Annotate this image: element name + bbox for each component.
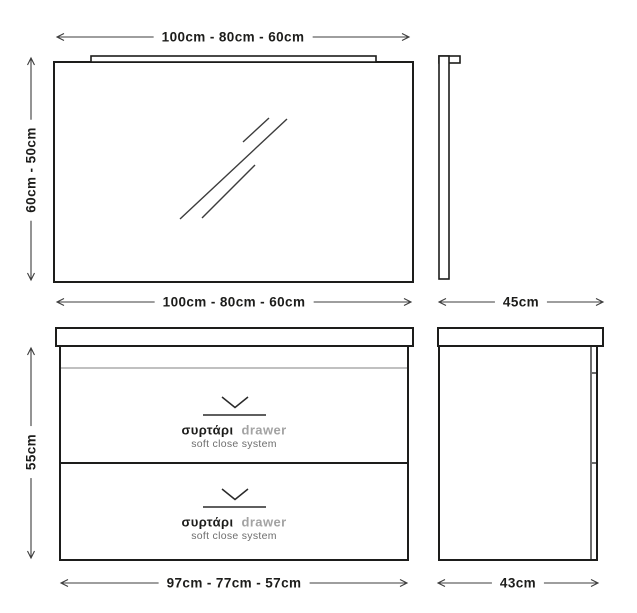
mirror-front-top-ledge — [91, 56, 376, 62]
drawer-1-label-english: drawer — [242, 423, 287, 438]
cabinet-countertop — [56, 328, 413, 346]
cabinet-side-view — [438, 328, 603, 560]
cabinet-side-body-outline — [439, 346, 597, 560]
mirror-side-profile — [439, 56, 449, 279]
drawer-2-label: συρτάρι drawer — [181, 516, 286, 529]
dim-label-mirror-depth: 45cm — [495, 295, 547, 309]
drawer-1-subtitle: soft close system — [191, 439, 277, 450]
drawer-1-label-greek: συρτάρι — [181, 423, 233, 438]
dim-label-cabinet-depth: 43cm — [492, 576, 544, 590]
dim-label-cabinet-width: 100cm - 80cm - 60cm — [155, 295, 314, 309]
mirror-front-outline — [54, 62, 413, 282]
cabinet-side-countertop — [438, 328, 603, 346]
drawer-2-subtitle: soft close system — [191, 531, 277, 542]
dim-label-mirror-height: 60cm - 50cm — [24, 119, 38, 220]
dim-label-mirror-width: 100cm - 80cm - 60cm — [154, 30, 313, 44]
mirror-front-view — [54, 56, 413, 282]
furniture-dimension-drawing: 100cm - 80cm - 60cm 60cm - 50cm 100cm - … — [0, 0, 637, 613]
drawer-2-label-english: drawer — [242, 515, 287, 530]
drawer-2-label-greek: συρτάρι — [181, 515, 233, 530]
mirror-side-view — [439, 56, 460, 279]
drawer-1-label: συρτάρι drawer — [181, 424, 286, 437]
dim-label-cabinet-height: 55cm — [24, 426, 38, 478]
dim-label-cabinet-body-width: 97cm - 77cm - 57cm — [159, 576, 310, 590]
